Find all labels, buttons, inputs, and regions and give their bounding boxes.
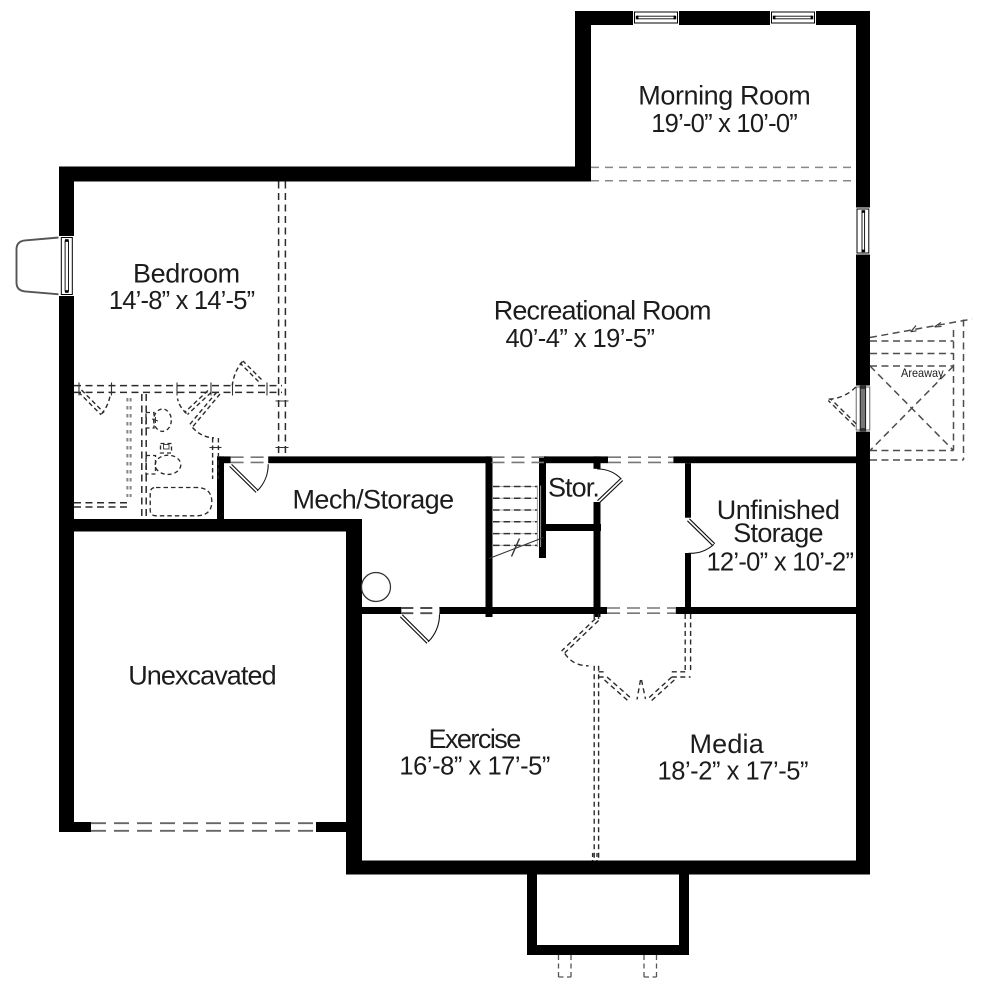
svg-text:Bedroom: Bedroom [133, 259, 240, 289]
svg-text:12’-0” x 10’-2”: 12’-0” x 10’-2” [706, 549, 854, 577]
svg-text:Stor.: Stor. [548, 473, 600, 503]
svg-text:19’-0” x 10’-0”: 19’-0” x 10’-0” [651, 110, 798, 138]
svg-text:Morning Room: Morning Room [638, 81, 810, 111]
svg-text:Mech/Storage: Mech/Storage [292, 484, 454, 514]
svg-text:18’-2” x 17’-5”: 18’-2” x 17’-5” [658, 758, 809, 786]
svg-text:Areaway: Areaway [901, 366, 944, 380]
svg-text:40’-4” x 19’-5”: 40’-4” x 19’-5” [505, 325, 655, 353]
svg-text:Exercise: Exercise [429, 724, 522, 754]
svg-text:Media: Media [689, 729, 764, 759]
svg-text:14’-8” x 14’-5”: 14’-8” x 14’-5” [109, 287, 255, 315]
svg-text:Unexcavated: Unexcavated [128, 661, 276, 691]
svg-text:Recreational Room: Recreational Room [494, 296, 712, 326]
svg-text:Storage: Storage [733, 518, 823, 548]
svg-text:16’-8” x 17’-5”: 16’-8” x 17’-5” [399, 753, 550, 781]
